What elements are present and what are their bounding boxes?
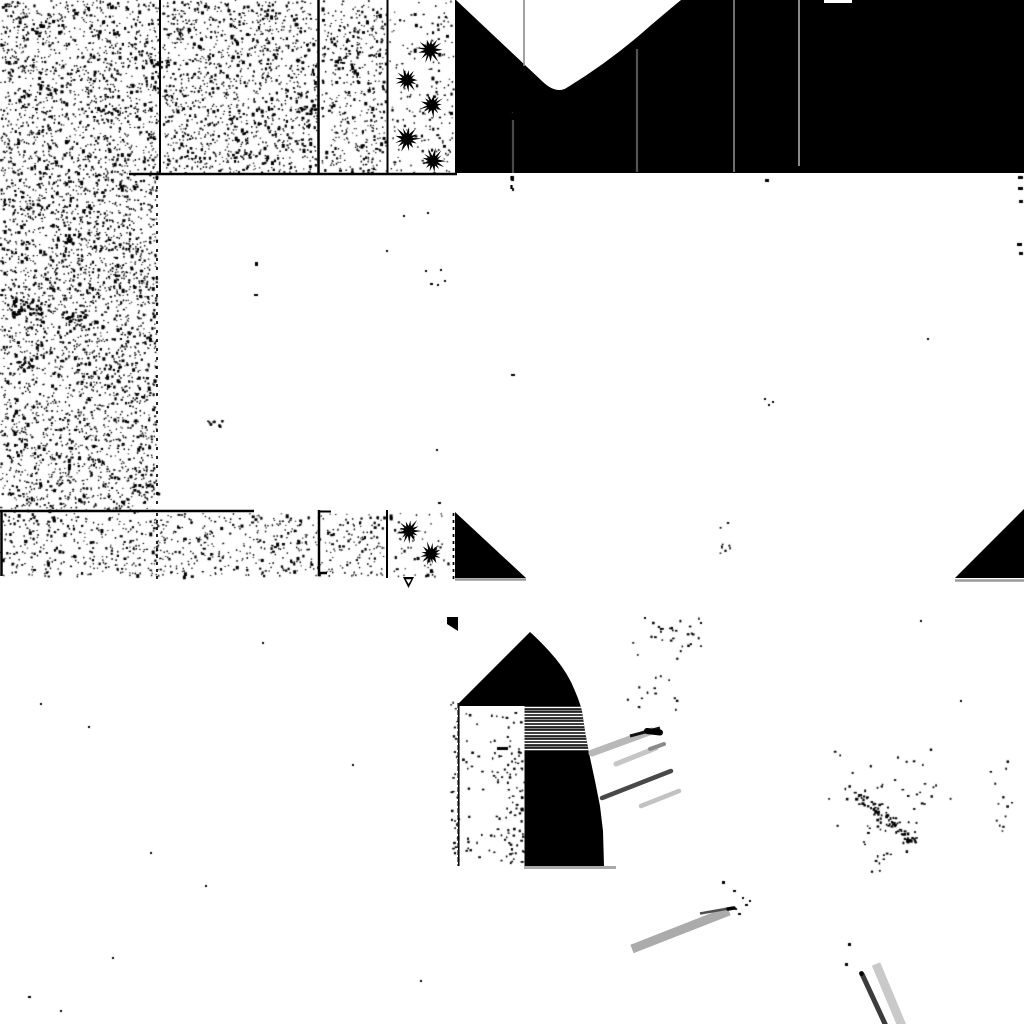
noise-texture-canvas: [0, 0, 1024, 1024]
binarized-scene: [0, 0, 1024, 1024]
